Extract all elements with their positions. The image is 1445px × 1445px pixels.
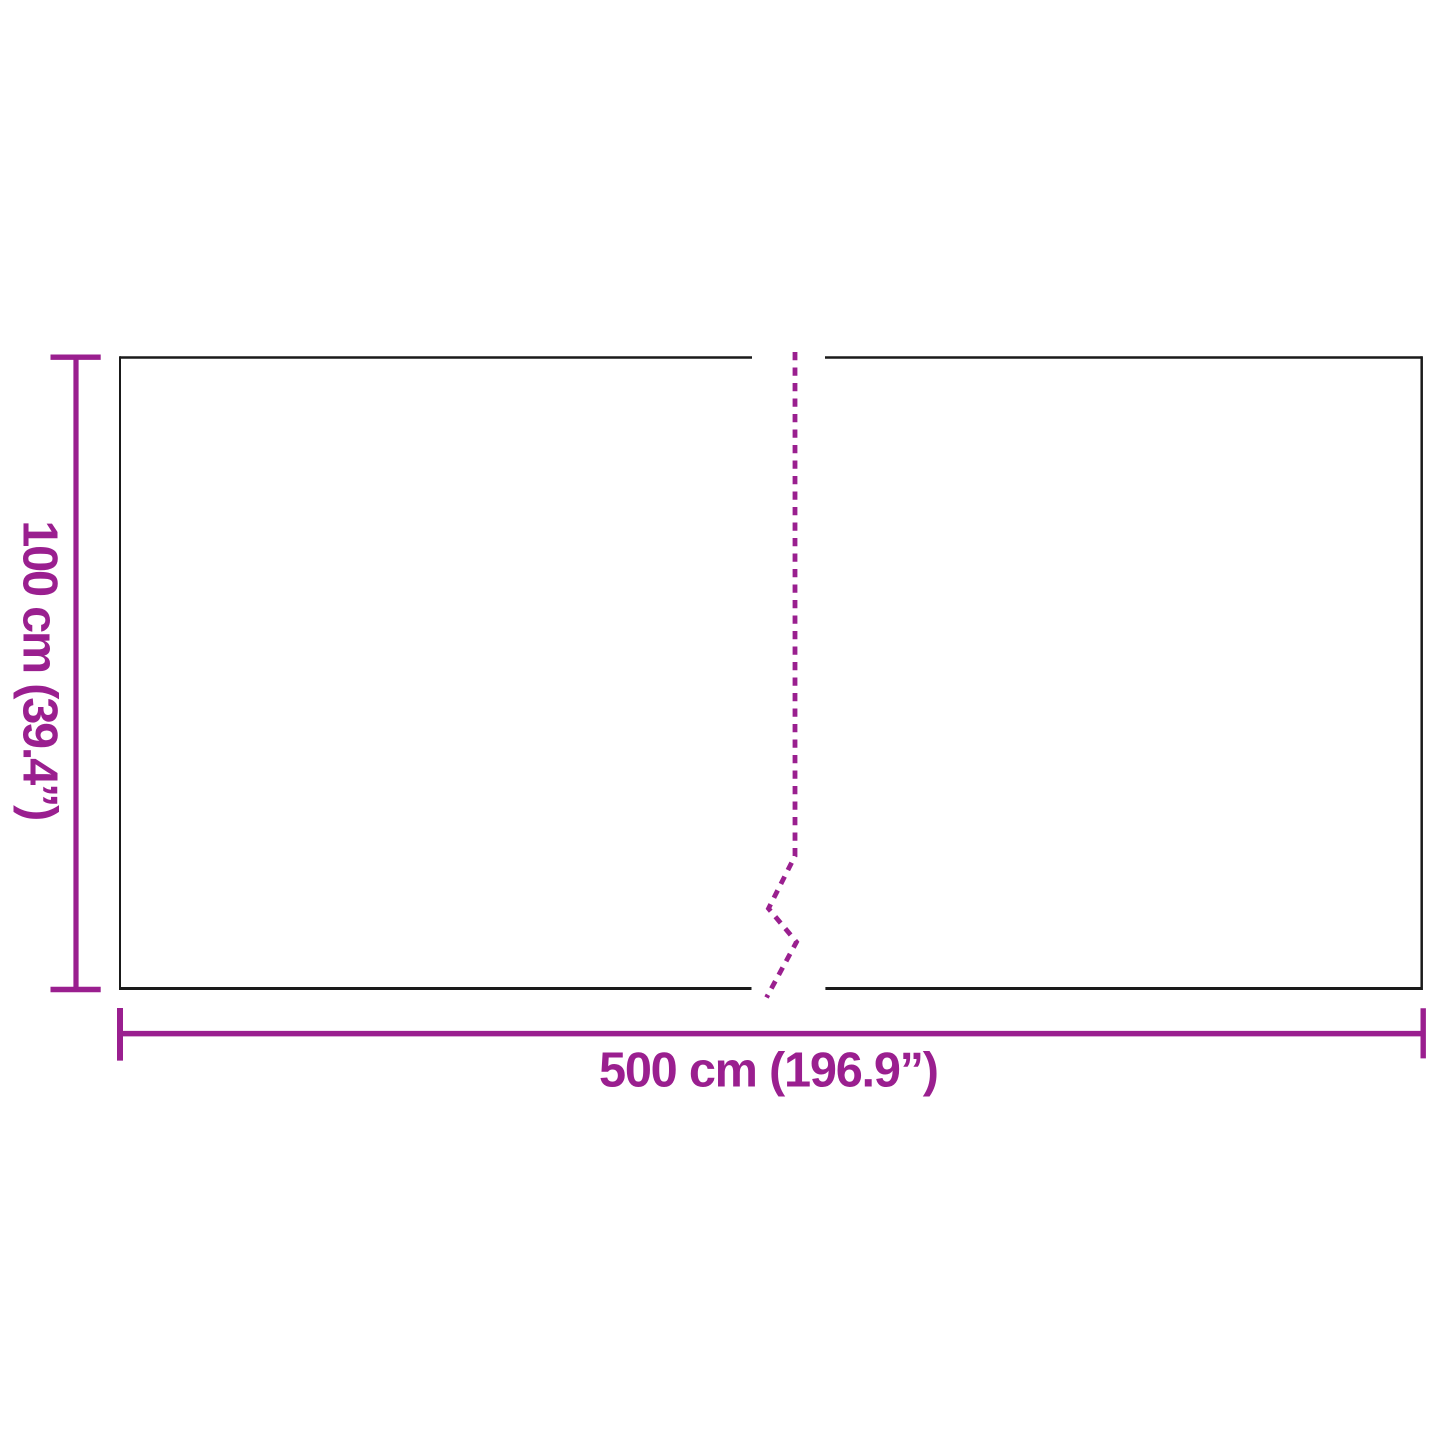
svg-text:100 cm (39.4”): 100 cm (39.4”) [12,520,66,821]
svg-text:500 cm (196.9”): 500 cm (196.9”) [599,1044,939,1098]
